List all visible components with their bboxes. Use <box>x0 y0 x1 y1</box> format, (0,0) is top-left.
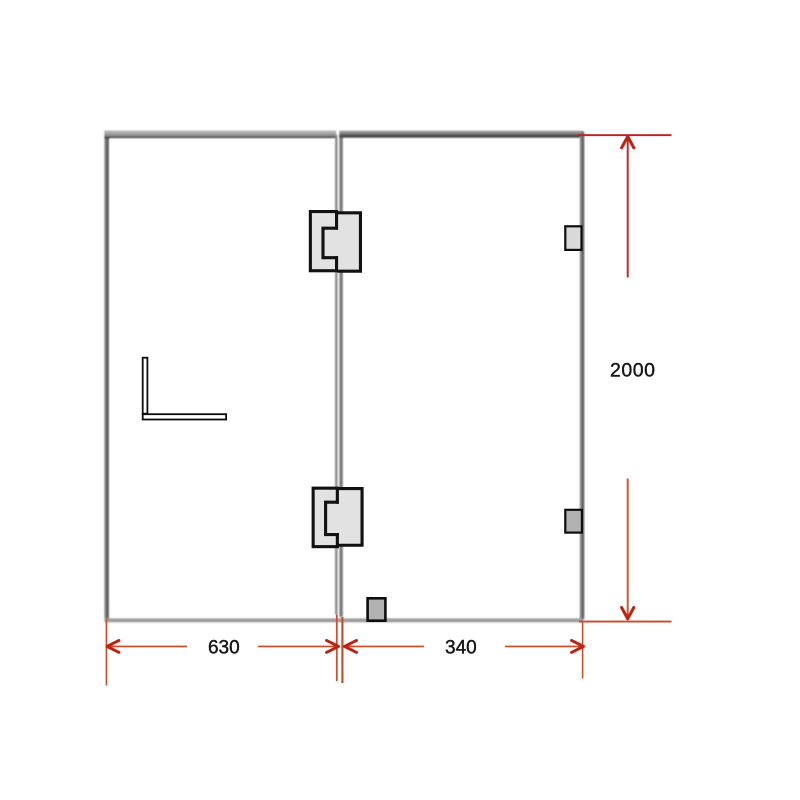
svg-text:2000: 2000 <box>610 360 656 382</box>
svg-text:630: 630 <box>208 638 240 659</box>
svg-text:340: 340 <box>445 637 477 658</box>
